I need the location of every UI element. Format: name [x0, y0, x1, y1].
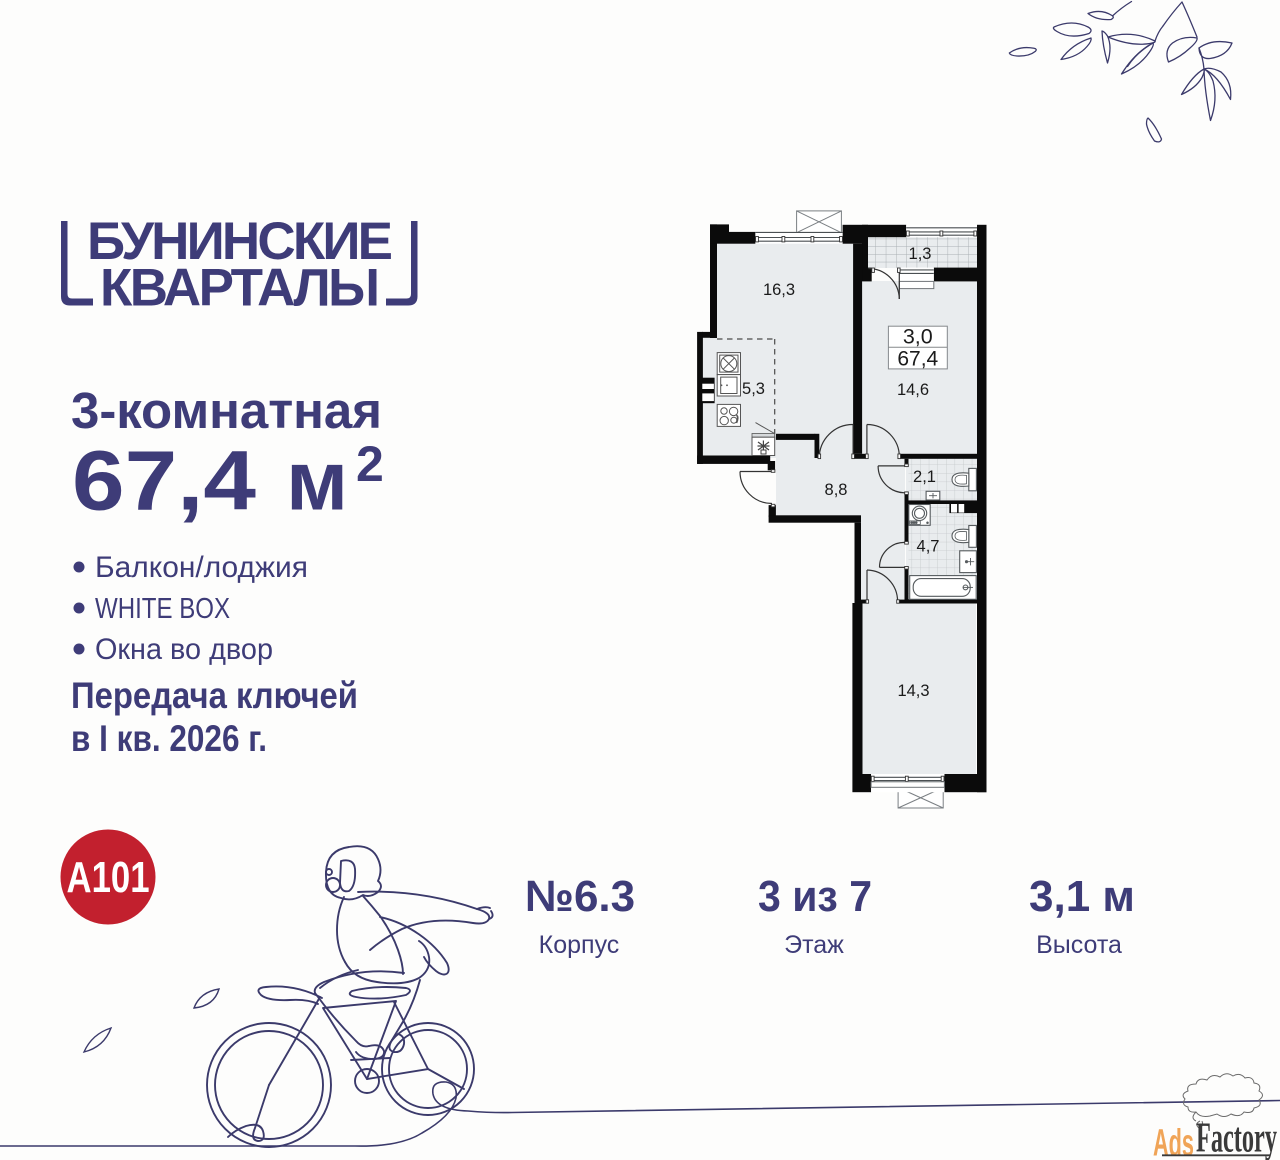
svg-text:5,3: 5,3 — [742, 380, 765, 398]
svg-text:3,1 м: 3,1 м — [1029, 872, 1135, 921]
svg-text:A101: A101 — [67, 853, 150, 902]
svg-text:67,4: 67,4 — [72, 434, 256, 528]
svg-text:3 из 7: 3 из 7 — [758, 872, 872, 921]
svg-text:Корпус: Корпус — [539, 931, 620, 959]
svg-text:м: м — [286, 434, 348, 528]
svg-text:№6.3: №6.3 — [525, 872, 635, 921]
svg-text:Окна во двор: Окна во двор — [95, 633, 273, 666]
svg-text:в I кв. 2026 г.: в I кв. 2026 г. — [71, 718, 267, 759]
svg-text:WHITE BOX: WHITE BOX — [95, 593, 230, 625]
svg-text:3-комнатная: 3-комнатная — [71, 382, 382, 439]
svg-text:14,6: 14,6 — [897, 381, 929, 399]
svg-text:8,8: 8,8 — [825, 481, 848, 499]
svg-text:3,0: 3,0 — [903, 325, 933, 349]
svg-text:2: 2 — [356, 436, 384, 492]
svg-text:4,7: 4,7 — [917, 538, 940, 556]
svg-text:Передача ключей: Передача ключей — [71, 675, 358, 716]
svg-text:67,4: 67,4 — [897, 348, 938, 371]
svg-text:Высота: Высота — [1036, 931, 1122, 959]
svg-text:2,1: 2,1 — [913, 468, 936, 486]
svg-text:1,3: 1,3 — [909, 245, 932, 263]
svg-text:Factory: Factory — [1196, 1116, 1277, 1160]
svg-text:Ads: Ads — [1153, 1123, 1194, 1160]
svg-text:Балкон/лоджия: Балкон/лоджия — [95, 551, 308, 584]
svg-text:16,3: 16,3 — [763, 281, 795, 299]
svg-text:КВАРТАЛЫ: КВАРТАЛЫ — [100, 259, 380, 318]
svg-text:Этаж: Этаж — [784, 931, 844, 959]
svg-text:14,3: 14,3 — [897, 682, 929, 700]
